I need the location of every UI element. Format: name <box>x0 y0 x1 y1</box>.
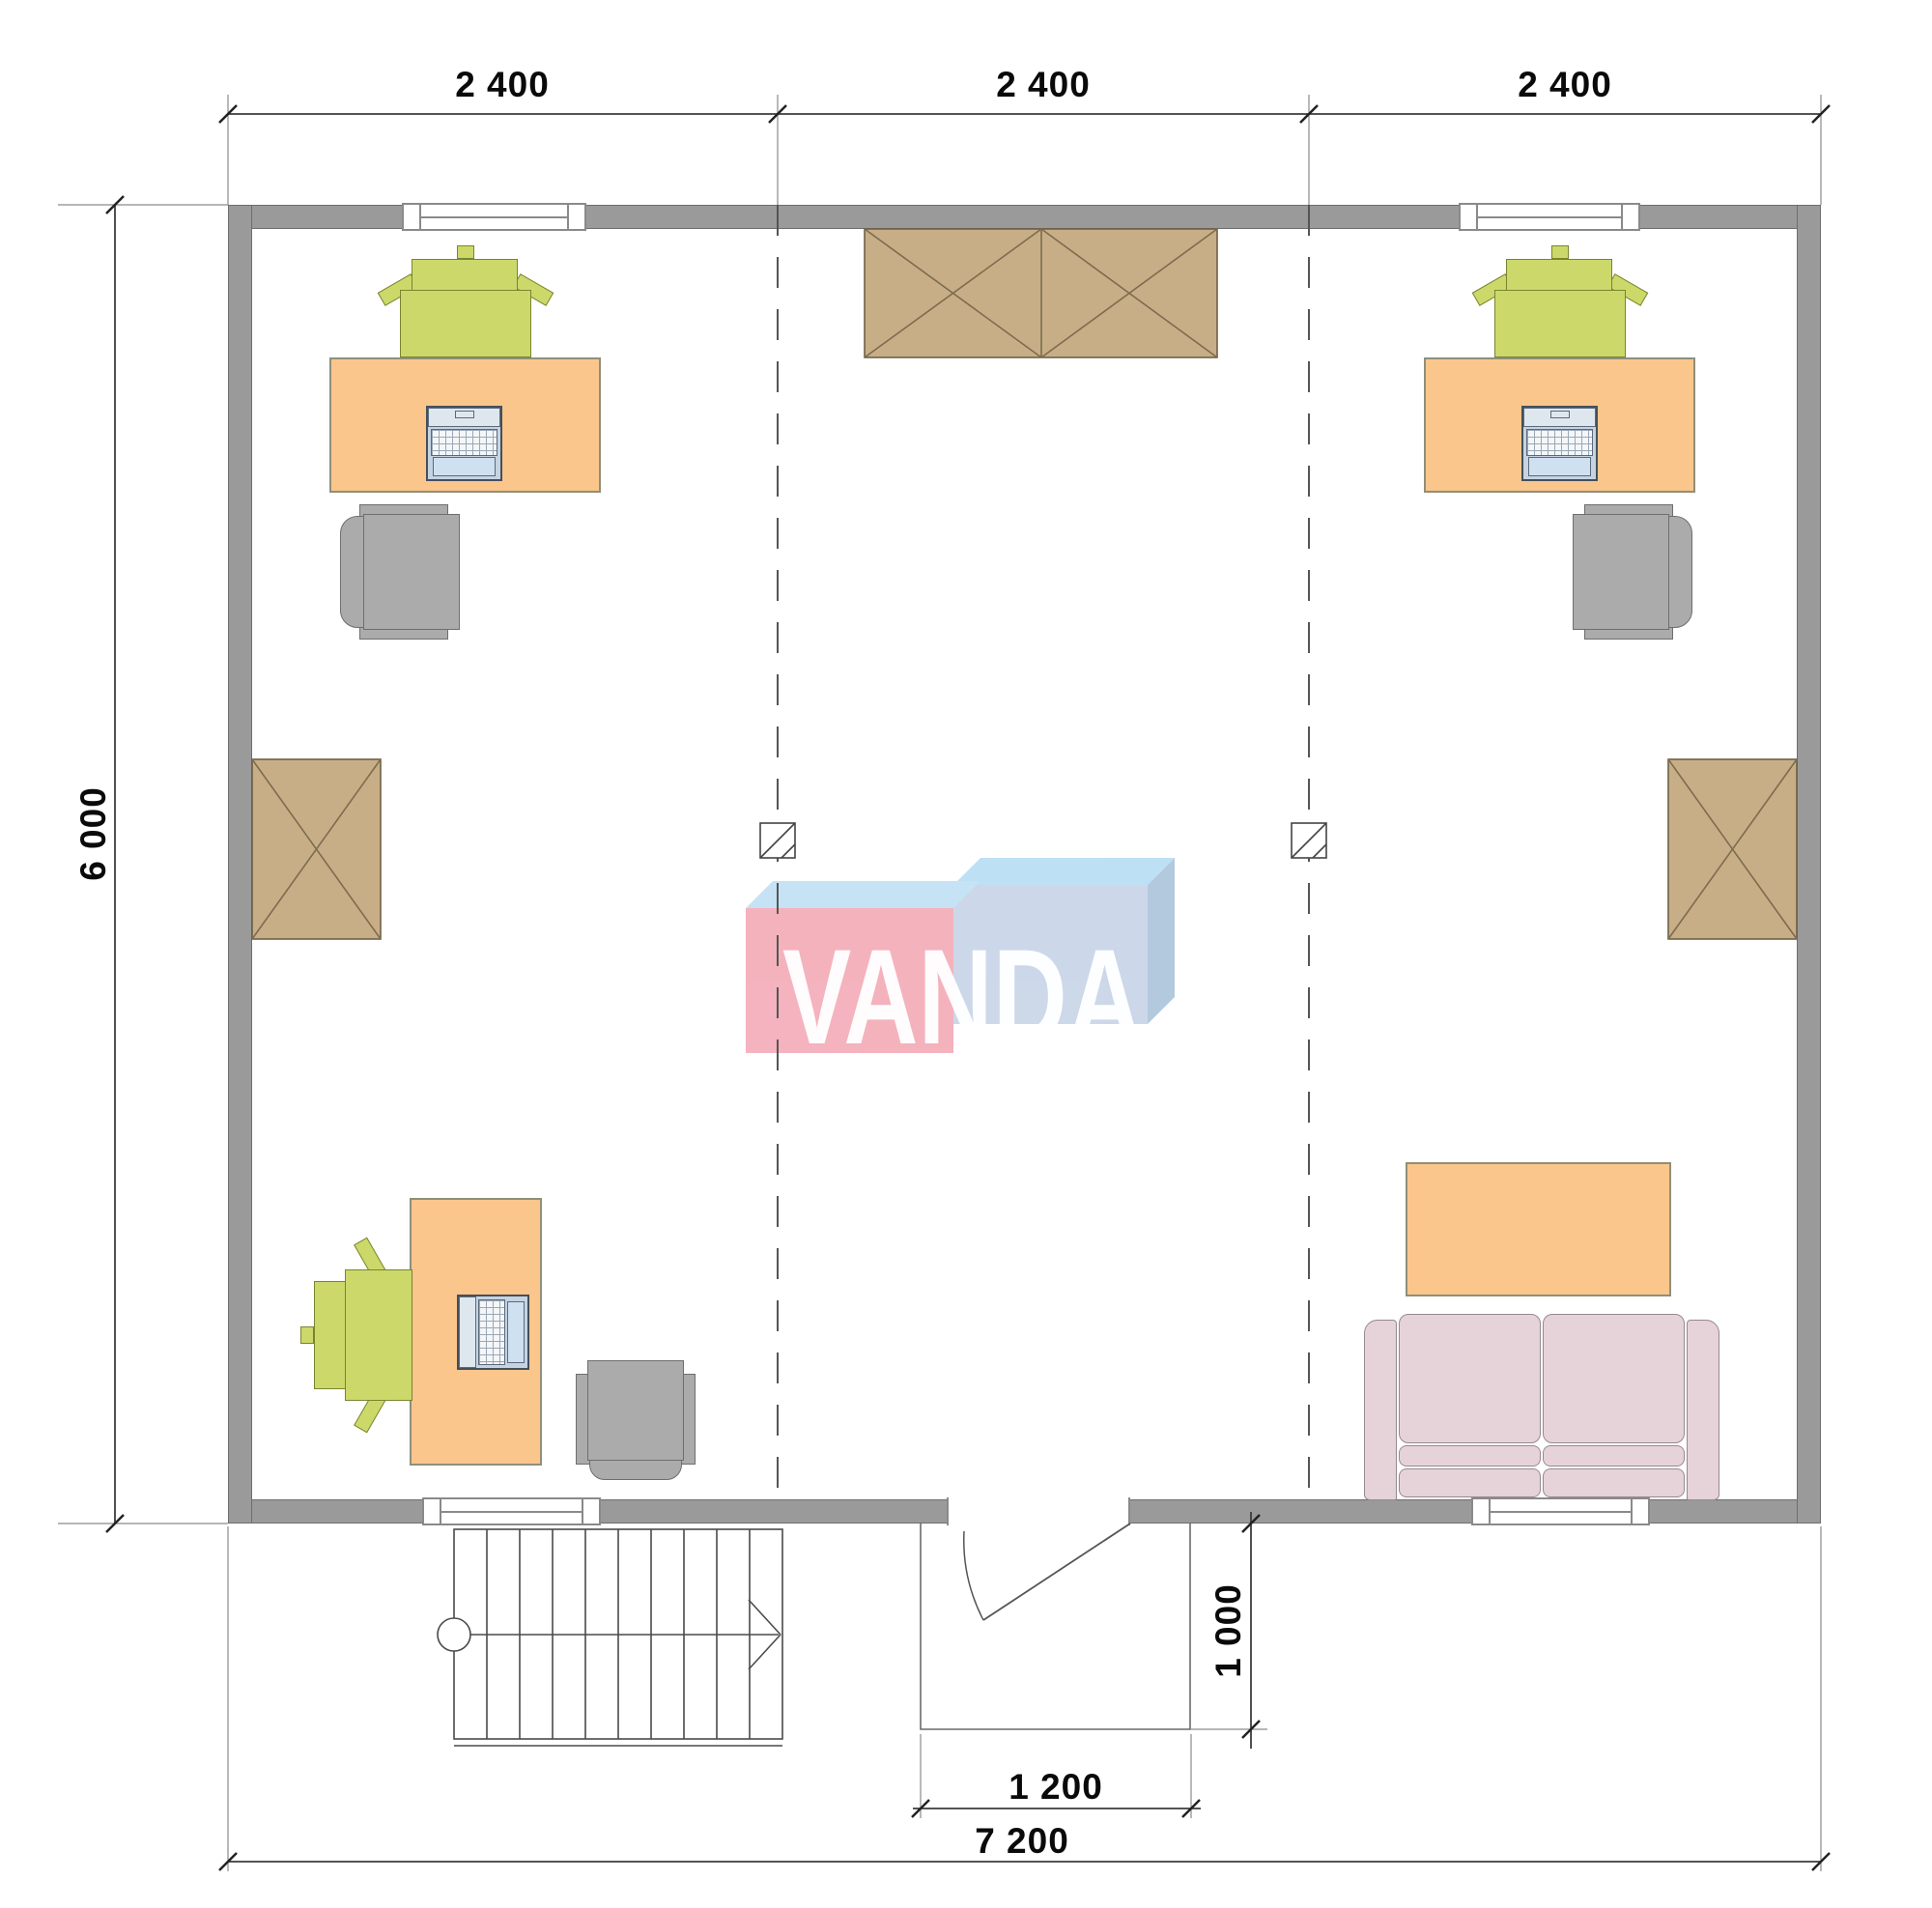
office-chair-top-right <box>1571 504 1692 640</box>
dim-label-left-height: 6 000 <box>73 786 114 881</box>
green-armchair-top-left <box>400 245 531 357</box>
cabinet-left-wall <box>252 759 381 939</box>
chair-seat <box>1494 290 1626 357</box>
dim-label-total-width: 7 200 <box>975 1821 1069 1862</box>
chair-head-tab <box>457 245 474 259</box>
office-chair-bottom-left <box>576 1360 696 1480</box>
porch-outline <box>921 1524 1190 1729</box>
door-arc <box>964 1531 983 1620</box>
dim-label-porch-depth: 1 000 <box>1208 1583 1249 1678</box>
stairs <box>438 1529 782 1746</box>
laptop-screen <box>433 457 496 476</box>
sofa-armrest <box>1364 1320 1397 1500</box>
chair-backrest <box>314 1281 347 1389</box>
sofa-seat-edge <box>1543 1445 1685 1467</box>
chair-seat <box>363 514 460 630</box>
dim-label-top-3: 2 400 <box>1518 65 1612 105</box>
laptop-bottom-left <box>457 1295 529 1370</box>
sofa <box>1364 1314 1719 1500</box>
floor-plan: VANDA <box>0 0 1932 1908</box>
cabinet-top-center <box>865 229 1217 357</box>
laptop-hinge <box>459 1296 476 1368</box>
door-swing <box>964 1524 1130 1620</box>
door-leaf <box>983 1524 1130 1620</box>
laptop-detail <box>455 411 474 418</box>
green-armchair-bottom-left <box>300 1269 412 1401</box>
chair-head-tab <box>300 1326 314 1344</box>
axis-dashed-lines <box>778 205 1309 1499</box>
sofa-cushion <box>1399 1314 1541 1443</box>
cabinet-right-wall <box>1668 759 1797 939</box>
sofa-seat-edge <box>1543 1468 1685 1497</box>
laptop-top-right <box>1521 406 1598 481</box>
chair-head-tab <box>1551 245 1569 259</box>
green-armchair-top-right <box>1494 245 1626 357</box>
chair-seat <box>345 1269 412 1401</box>
laptop-keyboard <box>1526 429 1593 456</box>
laptop-keyboard <box>478 1299 505 1365</box>
chair-backrest <box>1506 259 1612 292</box>
chair-backrest <box>412 259 518 292</box>
sofa-cushion <box>1543 1314 1685 1443</box>
stairs-start-circle <box>438 1618 470 1651</box>
dim-label-top-2: 2 400 <box>996 65 1091 105</box>
column-symbol-left <box>760 823 795 858</box>
chair-seat <box>400 290 531 357</box>
chair-seat <box>587 1360 684 1461</box>
chair-seat <box>1573 514 1669 630</box>
laptop-screen <box>1528 457 1591 476</box>
sofa-seat-edge <box>1399 1468 1541 1497</box>
dim-label-top-1: 2 400 <box>455 65 550 105</box>
office-chair-top-left <box>340 504 462 640</box>
laptop-detail <box>1550 411 1570 418</box>
coffee-table <box>1406 1162 1671 1296</box>
sofa-armrest <box>1687 1320 1719 1500</box>
laptop-keyboard <box>431 429 497 456</box>
laptop-top-left <box>426 406 502 481</box>
plan-linework <box>0 0 1932 1908</box>
dim-label-porch-width: 1 200 <box>1009 1767 1103 1808</box>
column-symbol-right <box>1292 823 1326 858</box>
laptop-screen <box>507 1301 525 1363</box>
sofa-seat-edge <box>1399 1445 1541 1467</box>
